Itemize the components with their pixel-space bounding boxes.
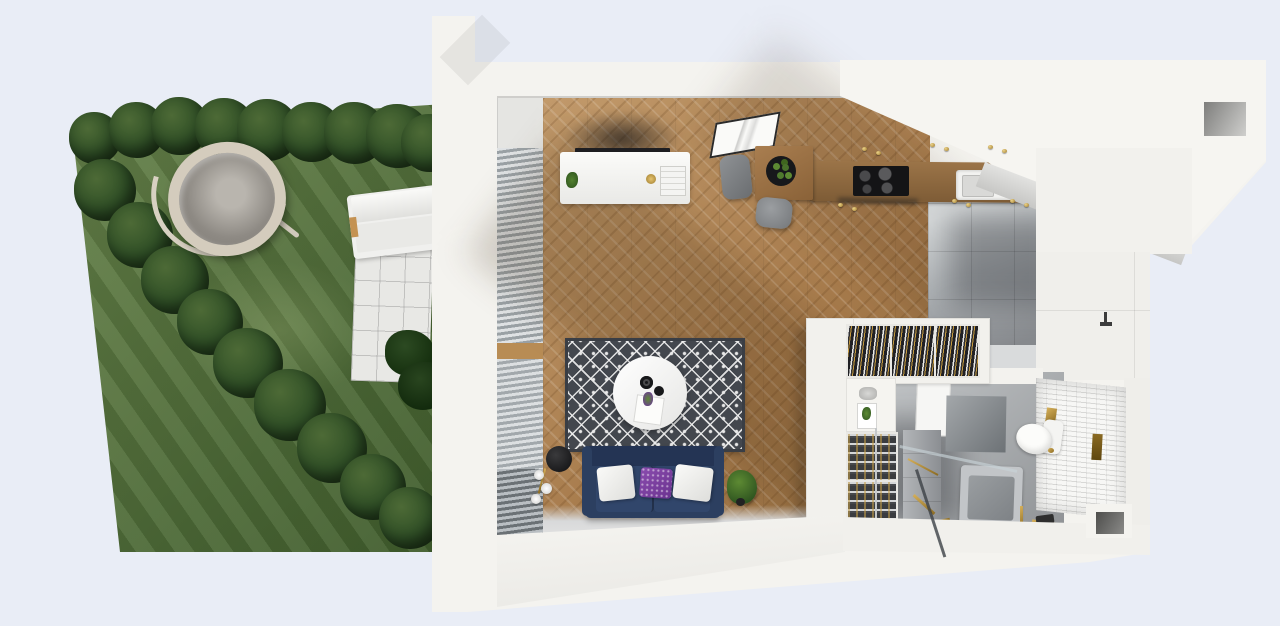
window-blinds-lower <box>497 359 543 469</box>
planter-greens <box>773 163 780 170</box>
unit-seam <box>1134 252 1135 380</box>
floor-lamp-bulb <box>531 494 541 504</box>
table-plant <box>643 392 653 406</box>
floorplan-render <box>0 0 1280 626</box>
planter-bowl <box>766 156 796 186</box>
garden-tree <box>379 487 441 549</box>
cabinet-handle <box>988 145 993 149</box>
shoe-rack <box>846 432 898 482</box>
dining-chair <box>719 154 753 201</box>
gold-flush-button <box>1048 448 1054 453</box>
window-frame-wood <box>497 343 543 359</box>
dining-stool <box>755 196 794 230</box>
cabinet-handle <box>852 207 857 211</box>
bowl-stack <box>859 387 877 400</box>
wardrobe-decor-shelf <box>846 378 896 432</box>
black-bowl <box>640 376 653 389</box>
window-notch <box>1202 100 1248 138</box>
white-pillow <box>596 464 635 502</box>
sofa-armrest <box>714 446 724 516</box>
bronze-towel-bar <box>1091 434 1102 460</box>
cabinet-handle <box>876 151 881 155</box>
cabinet-handle <box>1002 149 1007 153</box>
sofa-armrest <box>582 446 592 516</box>
purple-pillow <box>639 467 673 499</box>
tv-sideboard <box>560 152 690 204</box>
right-wall-upper <box>1036 148 1192 254</box>
floor-lamp-bulb <box>534 470 544 480</box>
hanging-clothes-rack <box>890 324 936 378</box>
cabinet-handle <box>1010 199 1015 203</box>
navy-sofa <box>585 446 721 518</box>
cooktop <box>853 166 909 196</box>
wall-niche <box>1096 512 1124 534</box>
black-bowl <box>654 386 664 396</box>
sun-lounger <box>346 185 445 260</box>
tall-white-unit <box>1036 252 1150 380</box>
sideboard-plant <box>566 172 578 188</box>
cabinet-handle <box>862 147 867 151</box>
cabinet-handle <box>1024 203 1029 207</box>
round-coffee-table <box>613 356 687 430</box>
cabinet-handle <box>944 147 949 151</box>
cabinet-handle <box>952 199 957 203</box>
cabinet-handle <box>930 143 935 147</box>
green-sprig <box>862 407 871 420</box>
hanging-clothes-rack <box>934 324 980 378</box>
white-pillow <box>672 464 714 502</box>
bathtub-inner <box>967 475 1015 521</box>
cabinet-handle <box>838 203 843 207</box>
wall-faucet <box>1104 312 1107 324</box>
sofa-backrest <box>585 446 721 466</box>
plant-pot <box>736 498 745 506</box>
book-stack <box>660 166 686 196</box>
hanging-clothes-rack <box>846 324 892 378</box>
gold-dish <box>646 174 656 184</box>
concrete-panel <box>946 395 1007 452</box>
floor-lamp-bulb <box>541 483 552 494</box>
cabinet-handle <box>966 203 971 207</box>
floor-lamp-shade <box>546 446 572 472</box>
unit-seam <box>1036 310 1150 311</box>
